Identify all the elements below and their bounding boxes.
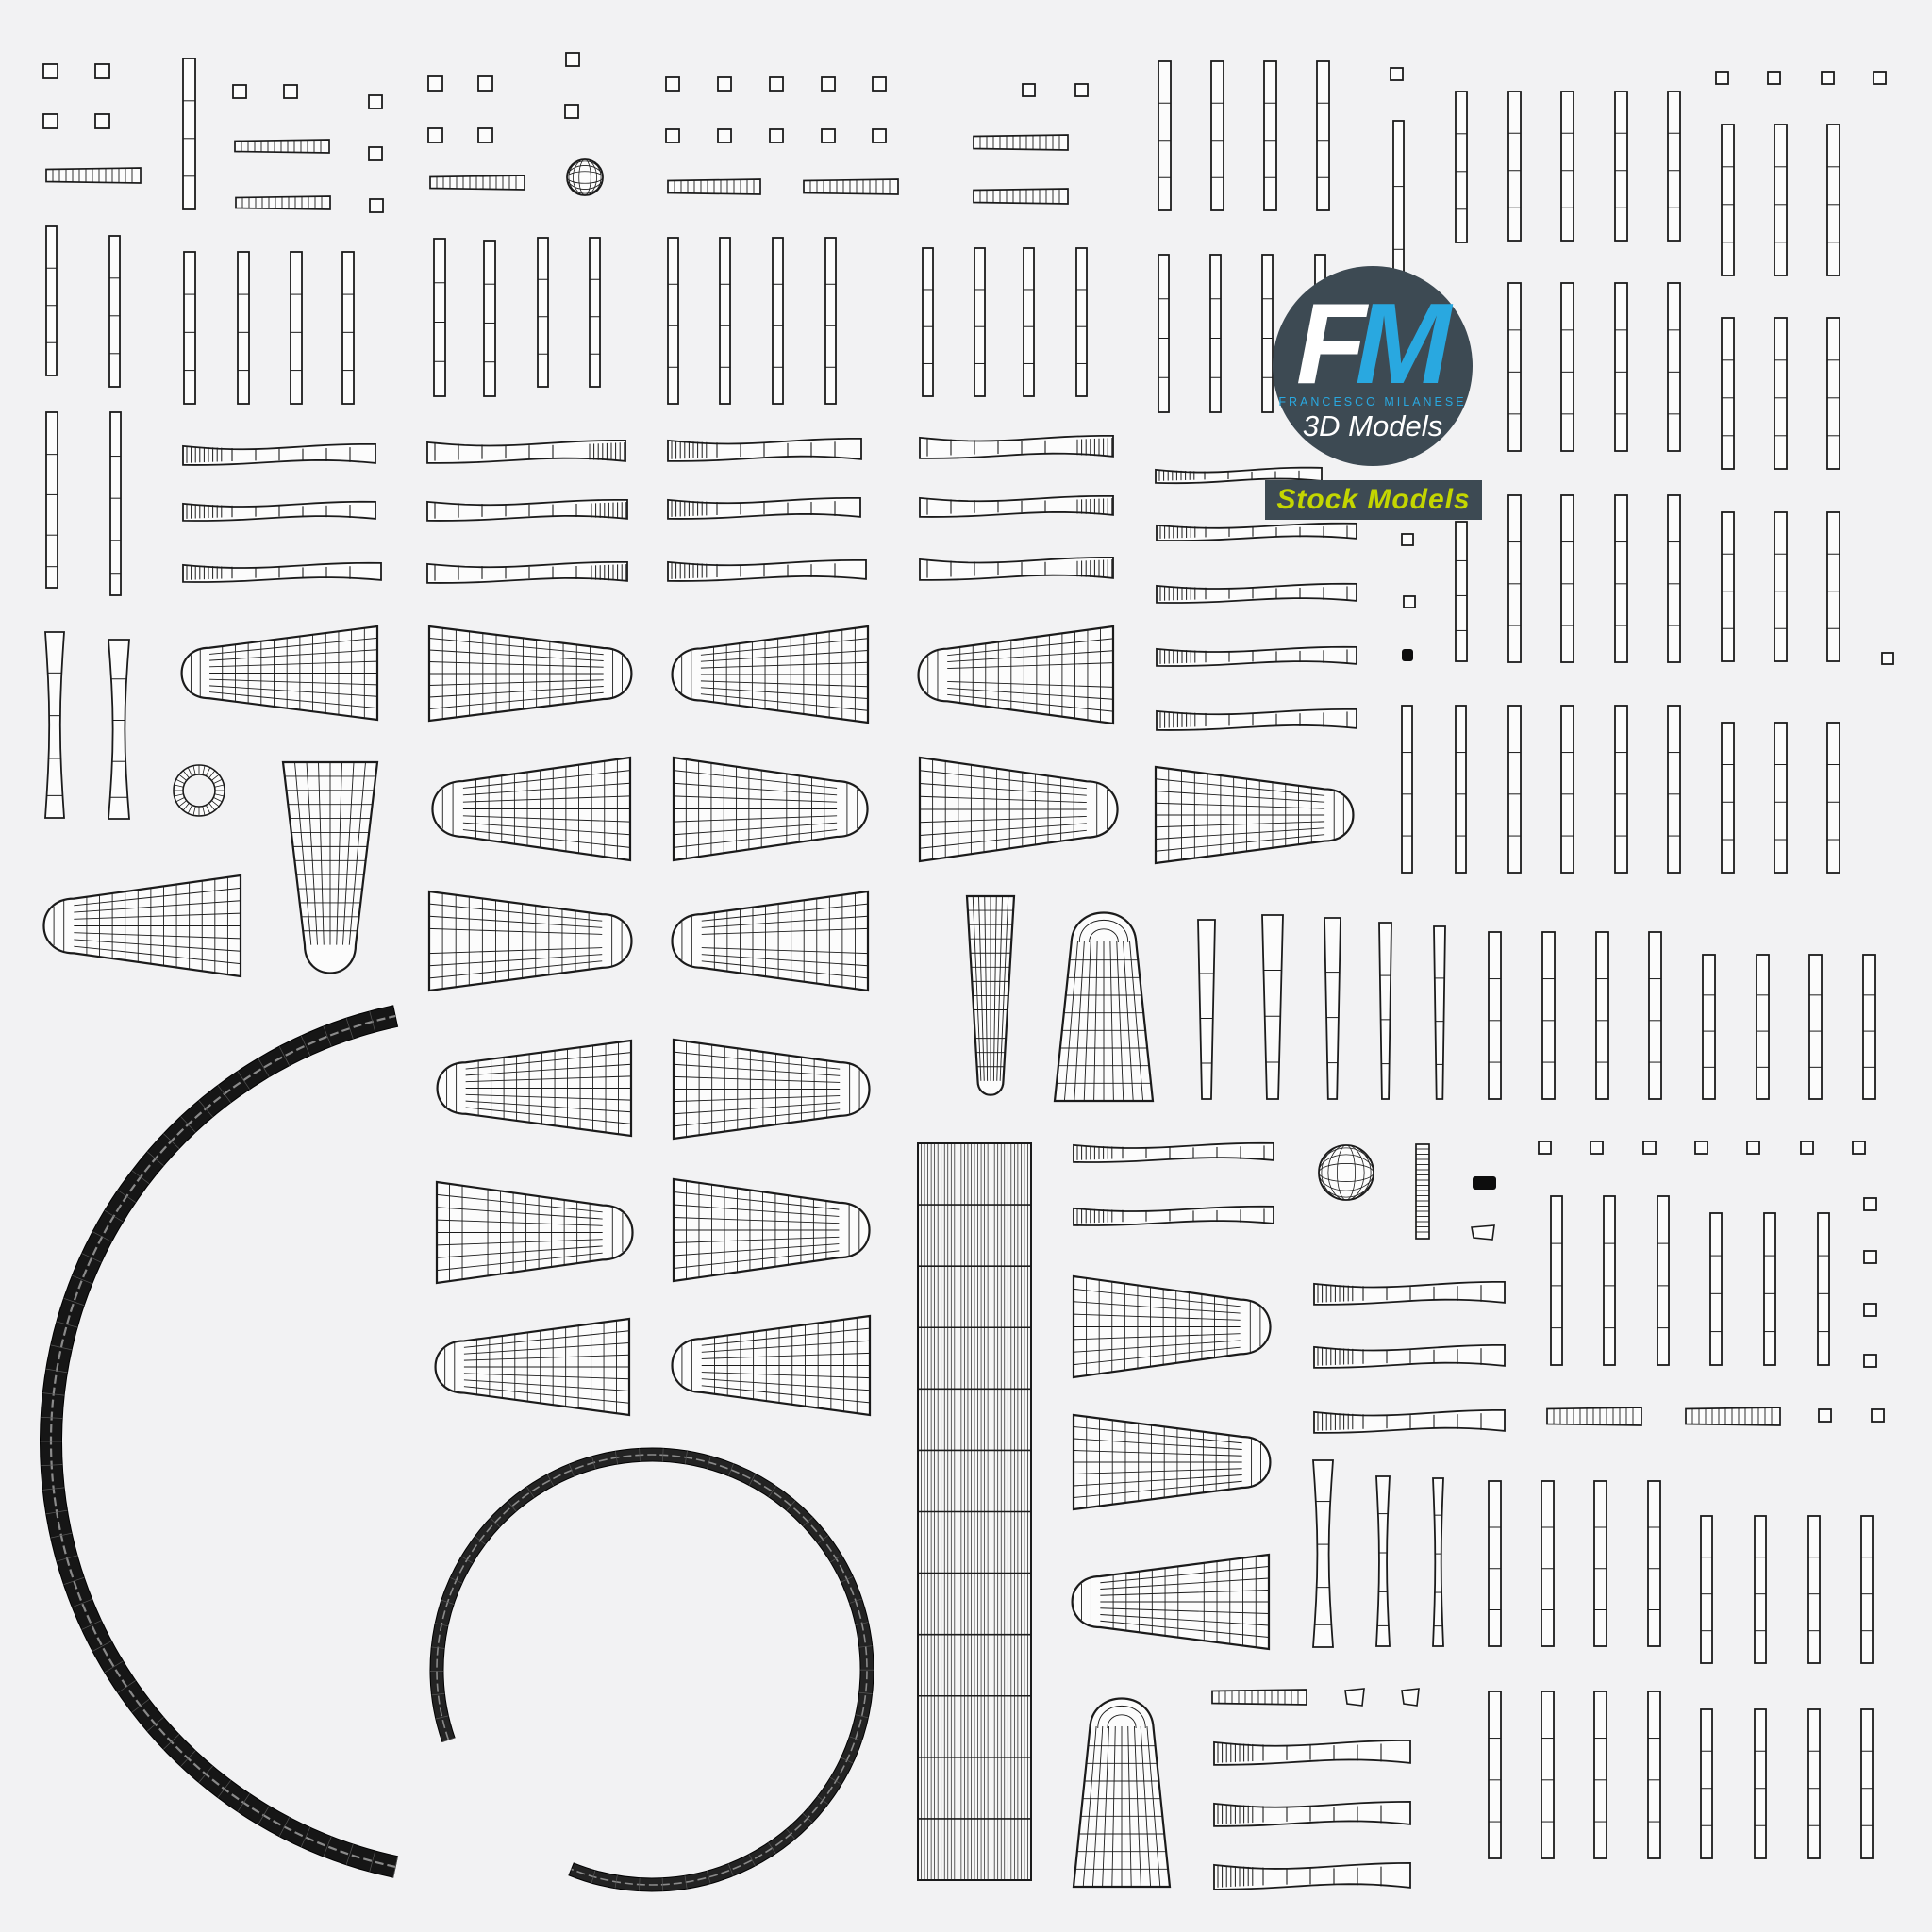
uv-slat — [1541, 1481, 1554, 1646]
uv-square — [666, 129, 679, 142]
uv-square — [369, 147, 382, 160]
uv-slat — [1774, 723, 1787, 873]
hatched-bar — [236, 196, 330, 209]
uv-slat — [1863, 955, 1875, 1099]
bone-bar — [1074, 1143, 1274, 1162]
wireframe-shapes-svg — [0, 0, 1932, 1932]
bone-bar — [668, 498, 860, 519]
taper-strip — [1324, 918, 1341, 1099]
uv-slat — [1402, 706, 1412, 873]
uv-slat — [1508, 283, 1521, 451]
uv-square — [95, 64, 109, 78]
uv-slat — [238, 252, 249, 404]
uv-square — [369, 95, 382, 108]
uv-square — [428, 128, 442, 142]
uv-slat — [1551, 1196, 1562, 1365]
uv-slat — [184, 252, 195, 404]
uv-square — [284, 85, 297, 98]
uv-slat — [1808, 1516, 1820, 1663]
wedge-island — [1472, 1225, 1494, 1240]
uv-square — [1801, 1141, 1813, 1154]
bone-bar — [668, 560, 866, 581]
uv-square — [1819, 1409, 1831, 1422]
uv-slat — [1264, 61, 1276, 210]
black-fragment — [1473, 1176, 1496, 1190]
uv-square — [1643, 1141, 1656, 1154]
bone-bar — [1314, 1410, 1505, 1433]
uv-square — [666, 77, 679, 91]
wedge-island — [1345, 1689, 1364, 1706]
cone-blade-horizontal — [674, 1040, 869, 1139]
bone-bar — [1214, 1802, 1410, 1826]
bone-bar — [1157, 584, 1357, 603]
uv-square — [718, 129, 731, 142]
uv-square — [95, 114, 109, 128]
hatched-bar — [974, 189, 1068, 204]
uv-slat — [1827, 512, 1840, 661]
cone-blade-horizontal — [182, 626, 377, 720]
uv-square — [1404, 596, 1415, 608]
uv-slat — [923, 248, 933, 396]
uv-square — [1864, 1355, 1876, 1367]
uv-square — [565, 105, 578, 118]
uv-square — [1075, 84, 1088, 96]
uv-slat — [1657, 1196, 1669, 1365]
bone-bar — [183, 444, 375, 465]
hatched-bar — [430, 175, 525, 190]
uv-slat — [1456, 706, 1466, 873]
uv-square — [1822, 72, 1834, 84]
uv-slat — [1604, 1196, 1615, 1365]
hourglass-strip — [108, 640, 129, 819]
uv-slat — [1489, 932, 1501, 1099]
uv-slat — [773, 238, 783, 404]
cone-blade-horizontal — [1074, 1276, 1271, 1377]
uv-slat — [1615, 706, 1627, 873]
cone-blade-horizontal — [432, 758, 630, 860]
uv-slat — [974, 248, 985, 396]
uv-slat — [109, 236, 120, 387]
uv-slat — [1561, 495, 1574, 662]
uv-square — [1716, 72, 1728, 84]
uv-slat — [825, 238, 836, 404]
uv-slat — [342, 252, 354, 404]
uv-slat — [1158, 61, 1171, 210]
uv-slat — [1456, 522, 1467, 661]
bullet-cone — [1055, 913, 1153, 1102]
uv-square — [822, 77, 835, 91]
uv-slat — [110, 412, 121, 595]
cone-blade-horizontal — [429, 626, 631, 721]
uv-square — [873, 77, 886, 91]
uv-square — [1864, 1251, 1876, 1263]
uv-slat — [1827, 125, 1840, 275]
uv-slat — [1648, 1481, 1660, 1646]
taper-strip — [1198, 920, 1215, 1099]
uv-slat — [1210, 255, 1221, 412]
cone-blade-horizontal — [429, 891, 631, 991]
uv-slat — [1668, 92, 1680, 241]
uv-slat — [1722, 125, 1734, 275]
uv-square — [43, 64, 58, 78]
bone-bar — [427, 441, 625, 463]
bone-bar — [920, 496, 1113, 517]
cone-blade-vertical — [283, 762, 377, 973]
uv-slat — [590, 238, 600, 387]
uv-square — [1872, 1409, 1884, 1422]
uv-slat — [1809, 955, 1822, 1099]
bullet-cone — [1074, 1699, 1170, 1888]
stock-models-label: Stock Models — [1276, 484, 1470, 516]
uv-slat — [484, 241, 495, 396]
uv-slat — [668, 238, 678, 404]
uv-slat — [1561, 283, 1574, 451]
horizontal-cones-group — [43, 626, 1353, 1649]
uv-slat — [46, 412, 58, 588]
hatched-bar — [46, 168, 141, 183]
uv-square — [43, 114, 58, 128]
uv-slat — [1861, 1709, 1873, 1858]
uv-square — [233, 85, 246, 98]
uv-slat — [1774, 318, 1787, 469]
uv-square — [566, 53, 579, 66]
hatched-bar — [235, 140, 329, 153]
uv-slat — [1262, 255, 1273, 412]
wedge-island — [1402, 1689, 1419, 1706]
bone-bar — [1214, 1740, 1410, 1765]
curved-arc-strip — [41, 1006, 398, 1877]
arc-strips-group — [41, 1006, 874, 1891]
bullet-cones-group — [1055, 913, 1170, 1888]
uv-slat — [1701, 1709, 1712, 1858]
taper-strip — [1379, 923, 1391, 1099]
bone-bar — [920, 558, 1113, 580]
uv-square — [1853, 1141, 1865, 1154]
uv-slat — [1541, 1691, 1554, 1858]
hatched-bar — [1212, 1690, 1307, 1705]
black-fragment — [1402, 649, 1413, 661]
bone-bar — [427, 562, 627, 583]
cone-blade-horizontal — [1074, 1415, 1270, 1509]
fm-logo-subtitle: 3D Models — [1303, 409, 1442, 443]
fm-logo-monogram: FM — [1296, 294, 1440, 393]
uv-slat — [1668, 283, 1680, 451]
bone-bar — [1157, 524, 1357, 541]
hatched-bar — [1686, 1407, 1780, 1425]
uv-slat — [1808, 1709, 1820, 1858]
uv-slat — [1648, 1691, 1660, 1858]
uv-square — [770, 77, 783, 91]
bone-bar — [1157, 709, 1357, 730]
uv-slat — [1508, 495, 1521, 662]
cone-blade-horizontal — [437, 1182, 633, 1283]
uv-slat — [1722, 512, 1734, 661]
uv-slat — [1668, 495, 1680, 662]
bone-bar — [1157, 647, 1357, 666]
wireframe-sphere — [1319, 1145, 1374, 1200]
uv-square — [478, 128, 492, 142]
dense-grid-column-group — [918, 1143, 1031, 1880]
bone-bar — [920, 436, 1113, 458]
wireframe-sphere — [567, 159, 603, 195]
uv-square — [873, 129, 886, 142]
cone-blade-horizontal — [1073, 1555, 1269, 1649]
uv-square — [1391, 68, 1403, 80]
uv-square — [1768, 72, 1780, 84]
uv-slat — [183, 58, 195, 209]
uv-layout-canvas: FM FRANCESCO MILANESE 3D Models Stock Mo… — [0, 0, 1932, 1932]
uv-slat — [1317, 61, 1329, 210]
cone-blade-horizontal — [436, 1319, 629, 1415]
cone-blade-horizontal — [673, 1316, 870, 1415]
uv-slat — [434, 239, 445, 396]
cone-blade-vertical — [967, 896, 1014, 1095]
cone-blade-horizontal — [920, 758, 1118, 861]
uv-square — [478, 76, 492, 91]
uv-slat — [1827, 318, 1840, 469]
uv-slat — [1710, 1213, 1722, 1365]
uv-slat — [1456, 92, 1467, 242]
uv-slat — [1508, 92, 1521, 241]
uv-slat — [1489, 1481, 1501, 1646]
uv-square — [1023, 84, 1035, 96]
wireframe-ring — [174, 765, 225, 816]
uv-slat — [1489, 1691, 1501, 1858]
uv-square — [1874, 72, 1886, 84]
cone-blade-horizontal — [674, 758, 868, 860]
bone-bar — [1314, 1282, 1505, 1305]
cone-blade-horizontal — [673, 891, 868, 991]
uv-square — [1864, 1198, 1876, 1210]
bone-bar — [1074, 1207, 1274, 1225]
uv-slat — [1561, 92, 1574, 241]
ladder-bars-group — [1416, 1144, 1429, 1239]
uv-slat — [1542, 932, 1555, 1099]
fm-logo-letter-f: F — [1296, 294, 1356, 393]
uv-square — [1402, 534, 1413, 545]
uv-slat — [1722, 723, 1734, 873]
uv-slat — [1774, 125, 1787, 275]
bone-bar — [427, 500, 627, 521]
hatched-bar — [1547, 1407, 1641, 1425]
bone-bar — [1214, 1863, 1410, 1890]
uv-square — [770, 129, 783, 142]
hourglass-strip — [1376, 1476, 1390, 1646]
hourglass-strip — [1433, 1478, 1443, 1646]
hourglass-strip — [1313, 1460, 1333, 1647]
cone-blade-horizontal — [674, 1179, 870, 1281]
uv-square — [370, 199, 383, 212]
uv-slat — [1594, 1691, 1607, 1858]
uv-slat — [1615, 92, 1627, 241]
uv-slat — [1701, 1516, 1712, 1663]
uv-square — [428, 76, 442, 91]
cone-blade-horizontal — [1156, 767, 1353, 863]
uv-slat — [1649, 932, 1661, 1099]
uv-slat — [1722, 318, 1734, 469]
cone-blade-horizontal — [919, 626, 1113, 724]
uv-square — [1882, 653, 1893, 664]
uv-slat — [1818, 1213, 1829, 1365]
uv-slat — [1594, 1481, 1607, 1646]
uv-slat — [1668, 706, 1680, 873]
hatched-bar — [668, 179, 760, 194]
rings-group — [174, 765, 225, 816]
cone-blade-horizontal — [438, 1041, 631, 1136]
uv-slat — [1755, 1516, 1766, 1663]
fm-logo-name: FRANCESCO MILANESE — [1278, 395, 1466, 408]
uv-slat — [1615, 283, 1627, 451]
ladder-bar — [1416, 1144, 1429, 1239]
uv-square — [1539, 1141, 1551, 1154]
uv-slat — [291, 252, 302, 404]
uv-square — [1864, 1304, 1876, 1316]
hatched-bar — [804, 179, 898, 194]
uv-square — [718, 77, 731, 91]
uv-slat — [1703, 955, 1715, 1099]
uv-slat — [1024, 248, 1034, 396]
uv-slat — [1615, 495, 1627, 662]
uv-slat — [1757, 955, 1769, 1099]
hatched-bar — [974, 135, 1068, 150]
uv-slat — [1861, 1516, 1873, 1663]
fm-logo-letter-m: M — [1355, 294, 1440, 393]
uv-square — [822, 129, 835, 142]
taper-strip — [1262, 915, 1283, 1099]
uv-slat — [1508, 706, 1521, 873]
uv-slat — [1596, 932, 1608, 1099]
cone-blade-horizontal — [673, 626, 868, 723]
uv-slat — [1764, 1213, 1775, 1365]
uv-slat — [538, 238, 548, 387]
uv-square — [1591, 1141, 1603, 1154]
uv-slat — [1774, 512, 1787, 661]
fm-logo-circle: FM FRANCESCO MILANESE 3D Models — [1273, 266, 1473, 466]
vertical-cones-group — [283, 762, 1014, 1095]
uv-slat — [1076, 248, 1087, 396]
bone-bar — [183, 563, 381, 582]
uv-slat — [1211, 61, 1224, 210]
bone-bar — [668, 439, 861, 461]
bone-bar — [183, 502, 375, 521]
uv-slat — [1158, 255, 1169, 412]
uv-slat — [1755, 1709, 1766, 1858]
uv-slat — [46, 226, 57, 375]
curved-arc-strip — [430, 1448, 874, 1891]
uv-square — [1747, 1141, 1759, 1154]
taper-strips-group — [1198, 915, 1445, 1099]
uv-slat — [1827, 723, 1840, 873]
stock-models-banner: Stock Models — [1265, 480, 1482, 520]
uv-slat — [1561, 706, 1574, 873]
uv-square — [1695, 1141, 1707, 1154]
bone-bar — [1314, 1345, 1505, 1368]
uv-slat — [720, 238, 730, 404]
taper-strip — [1434, 926, 1445, 1099]
hourglass-strip — [45, 632, 64, 818]
cone-blade-horizontal — [43, 875, 241, 976]
